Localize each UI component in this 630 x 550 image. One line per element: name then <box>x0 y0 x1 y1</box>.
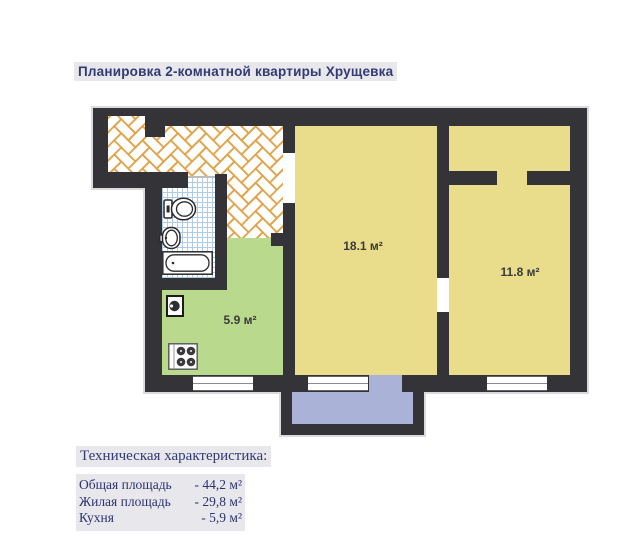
spec-label: Жилая площадь <box>79 494 171 511</box>
wall-corner-pier <box>145 108 165 137</box>
wall-bathroom-bottom <box>162 278 227 290</box>
kitchen-area-label: 5.9 м² <box>224 313 257 327</box>
wall-top <box>145 108 587 126</box>
wall-left <box>145 185 162 392</box>
wall-rooms-divider-upper <box>437 126 449 278</box>
spec-value: - 29,8 м² <box>195 494 242 511</box>
living-room-area-label: 18.1 м² <box>343 239 383 253</box>
spec-label: Кухня <box>79 510 114 527</box>
bathroom-door-opening <box>188 176 215 178</box>
specs-table: Общая площадь - 44,2 м² Жилая площадь - … <box>76 474 245 531</box>
bedroom-window <box>487 376 547 391</box>
spec-row-total-area: Общая площадь - 44,2 м² <box>79 477 242 494</box>
specs-heading: Техническая характеристика: <box>76 446 271 467</box>
bedroom-area-label: 11.8 м² <box>501 265 540 279</box>
spec-value: - 44,2 м² <box>195 477 242 494</box>
washing-machine-icon <box>166 295 184 317</box>
wall-living-left-upper <box>283 126 295 153</box>
spec-value: - 5,9 м² <box>201 510 242 527</box>
toilet-icon <box>163 195 197 223</box>
floor-plan: 18.1 м² 11.8 м² 5.9 м² <box>93 105 595 441</box>
balcony-door-opening <box>369 375 402 392</box>
wall-bathroom-top <box>93 172 188 188</box>
wash-basin-icon <box>159 226 181 250</box>
wall-kitchen-stub <box>271 233 283 246</box>
living-room-window <box>308 376 368 391</box>
wall-bathroom-right <box>215 174 227 290</box>
spec-label: Общая площадь <box>79 477 172 494</box>
page: { "title": "Планировка 2-комнатной кварт… <box>0 0 630 550</box>
bedroom-floor <box>449 126 570 375</box>
wall-right <box>570 108 587 392</box>
page-title: Планировка 2-комнатной квартиры Хрущевка <box>74 62 397 81</box>
wall-living-left-lower <box>283 203 295 375</box>
spec-row-living-area: Жилая площадь - 29,8 м² <box>79 494 242 511</box>
spec-row-kitchen-area: Кухня - 5,9 м² <box>79 510 242 527</box>
bathtub-icon <box>162 251 213 275</box>
kitchen-window <box>193 376 253 391</box>
wall-closet-right <box>527 171 570 185</box>
wall-rooms-divider-lower <box>437 312 449 375</box>
stove-icon <box>168 343 198 370</box>
wall-closet-left <box>449 171 497 185</box>
